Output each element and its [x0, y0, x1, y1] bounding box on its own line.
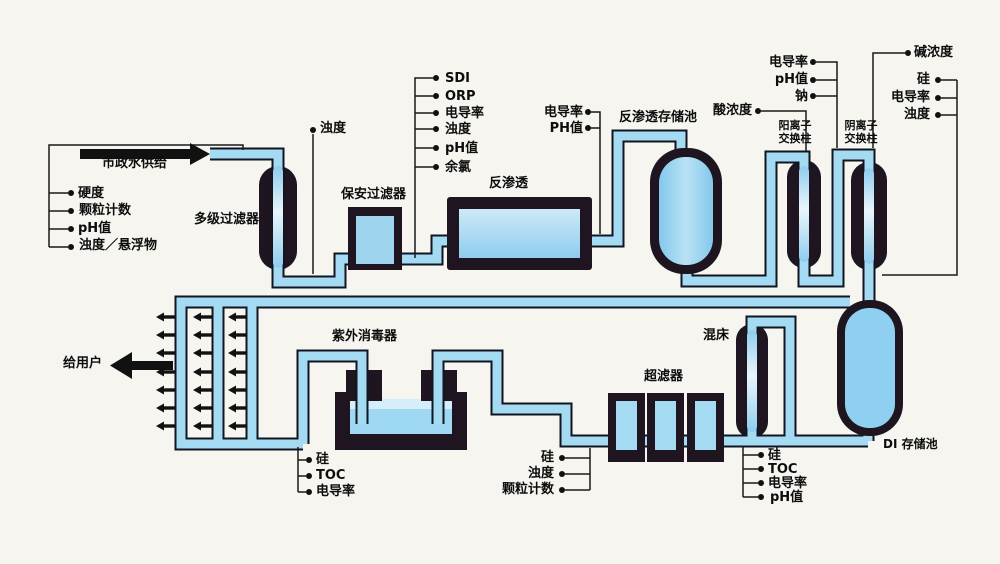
to-users-label: 给用户: [63, 357, 102, 370]
uv-product-toc: TOC: [316, 469, 345, 482]
before-ro-orp: ORP: [445, 90, 476, 103]
distribution-takeoff-arrows: [156, 313, 247, 431]
uv-product-silica: 硅: [316, 453, 329, 466]
before-ro-residual-chlorine: 余氯: [445, 161, 471, 174]
anion-product-conductivity: 电导率: [891, 91, 930, 104]
reverse-osmosis-label: 反渗透: [489, 177, 528, 190]
alkali-concentration-label: 碱浓度: [914, 46, 953, 59]
uv-sterilizer-label: 紫外消毒器: [332, 330, 397, 343]
before-ro-conductivity: 电导率: [445, 107, 484, 120]
before-ro-turbidity: 浊度: [445, 123, 471, 136]
ultrafilter-label: 超滤器: [644, 370, 683, 383]
cation-product-conductivity: 电导率: [769, 56, 808, 69]
uf-feed-particle-count: 颗粒计数: [502, 483, 554, 496]
feed-sensor-particle-count: 颗粒计数: [79, 204, 131, 217]
feed-sensor-turbidity-ss: 浊度／悬浮物: [79, 239, 157, 252]
security-filter-label: 保安过滤器: [341, 188, 406, 201]
ro-product-ph: PH值: [550, 122, 583, 135]
reverse-osmosis-unit: [447, 197, 592, 270]
acid-concentration-label: 酸浓度: [713, 104, 752, 117]
uv-product-conductivity: 电导率: [316, 485, 355, 498]
after-multistage-turbidity-label: 浊度: [320, 122, 346, 135]
multistage-filter-label: 多级过滤器: [194, 213, 259, 226]
ultrafilter-modules: [608, 393, 724, 462]
cation-product-sodium: 钠: [795, 90, 808, 103]
cation-product-ph: pH值: [775, 73, 808, 86]
ro-storage-tank: [650, 148, 722, 274]
before-ro-sdi: SDI: [445, 72, 470, 85]
municipal-supply-label: 市政水供给: [102, 157, 167, 170]
feed-sensor-ph: pH值: [78, 222, 111, 235]
anion-product-silica: 硅: [917, 73, 930, 86]
cation-exchange-label: 阳离子 交换柱: [769, 119, 821, 145]
security-filter-vessel: [348, 207, 402, 270]
di-storage-tank: [837, 300, 903, 436]
uf-feed-turbidity: 浊度: [528, 467, 554, 480]
before-ro-ph: pH值: [445, 142, 478, 155]
uv-sterilizer-vessel: [335, 370, 467, 450]
di-product-toc: TOC: [768, 463, 797, 476]
ro-product-conductivity: 电导率: [544, 106, 583, 119]
di-product-conductivity: 电导率: [768, 477, 807, 490]
di-storage-tank-label: DI 存储池: [883, 438, 938, 451]
di-product-silica: 硅: [768, 449, 781, 462]
anion-product-turbidity: 浊度: [904, 108, 930, 121]
feed-sensor-hardness: 硬度: [78, 187, 104, 200]
uf-feed-silica: 硅: [541, 451, 554, 464]
process-flow-diagram: 市政水供给 硬度 颗粒计数 pH值 浊度／悬浮物 多级过滤器 浊度 保安过滤器 …: [0, 0, 1000, 564]
diagram-graphics: [0, 0, 1000, 564]
mixed-bed-label: 混床: [703, 329, 729, 342]
di-product-ph: pH值: [770, 491, 803, 504]
anion-exchange-label: 阴离子 交换柱: [835, 119, 887, 145]
ro-storage-tank-label: 反渗透存储池: [619, 111, 697, 124]
